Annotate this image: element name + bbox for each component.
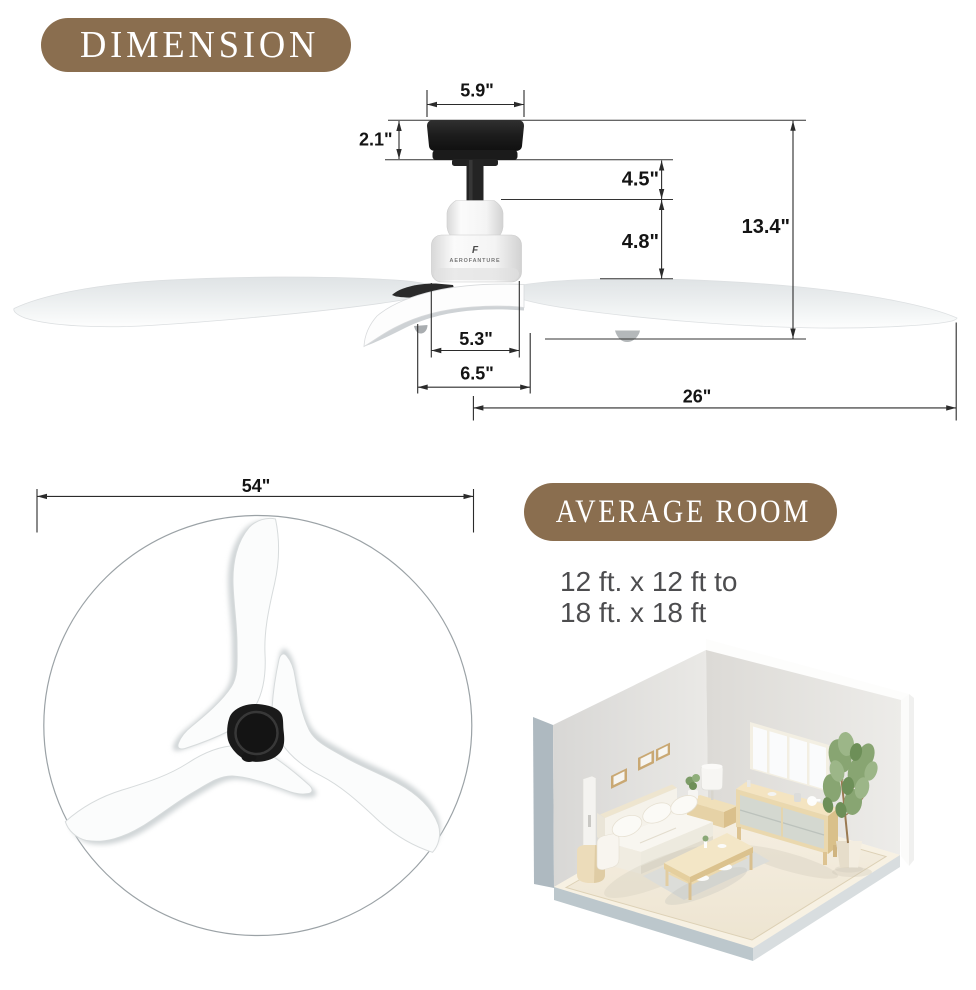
svg-text:54": 54" [242, 476, 271, 496]
svg-text:AEROFANTURE: AEROFANTURE [450, 258, 501, 264]
svg-text:F: F [472, 245, 479, 256]
